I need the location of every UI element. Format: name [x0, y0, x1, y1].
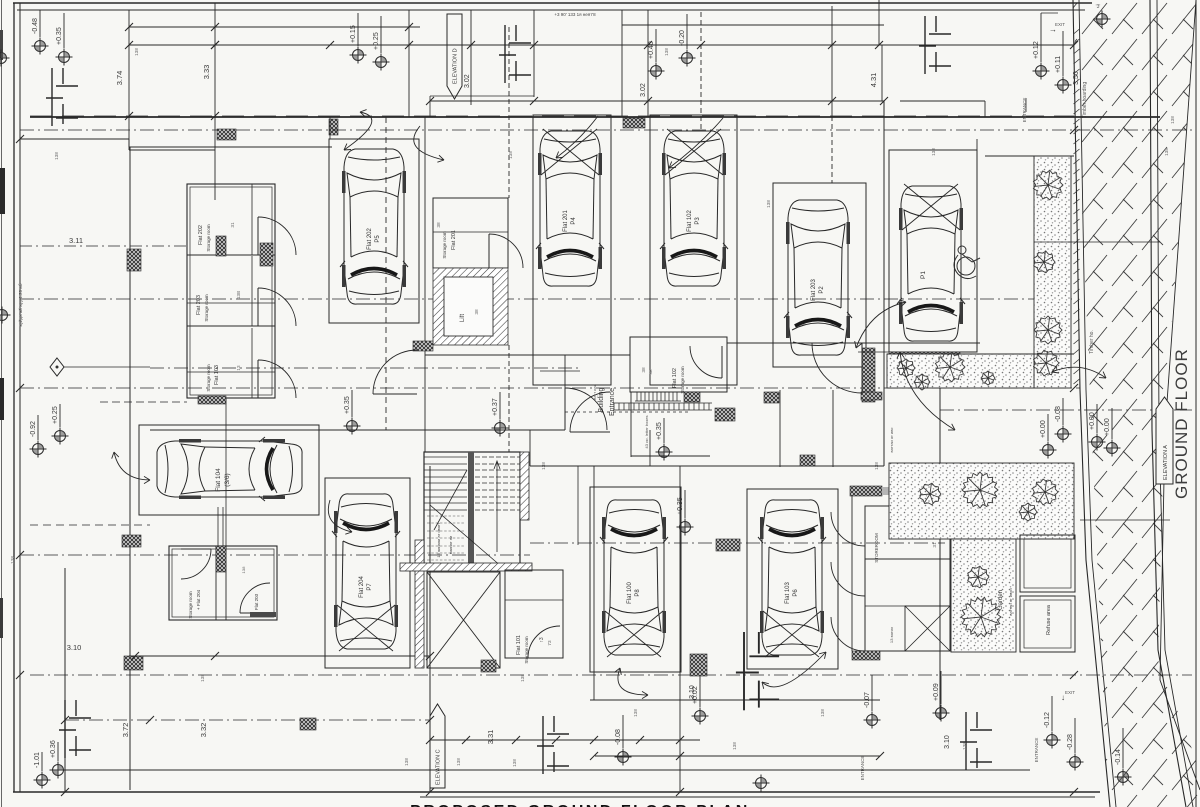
svg-text:P6: P6 [793, 589, 799, 597]
svg-text:+0.00: +0.00 [1089, 412, 1096, 430]
svg-text:3.02: 3.02 [464, 74, 471, 88]
svg-text:+0.15: +0.15 [350, 25, 357, 43]
svg-text:3.33: 3.33 [202, 65, 211, 80]
svg-text:-0.92: -0.92 [30, 421, 37, 437]
svg-text:1З: 1З [236, 365, 241, 371]
svg-text:Flat 103: Flat 103 [214, 365, 220, 385]
svg-text:ENTRANCE: ENTRANCE [1034, 738, 1039, 763]
svg-text:Flat 102: Flat 102 [687, 210, 693, 232]
svg-text:3.32: 3.32 [199, 723, 208, 738]
svg-text:1З8: 1З8 [633, 709, 638, 717]
svg-text:Flat 201: Flat 201 [451, 230, 457, 250]
svg-text:вуйда ай ауу 1.20 иб: вуйда ай ауу 1.20 иб [17, 283, 23, 326]
svg-text:1З8: 1З8 [54, 152, 59, 160]
svg-text:Flat 202: Flat 202 [198, 225, 204, 245]
svg-text:+0.11: +0.11 [1055, 56, 1062, 73]
svg-text:4З ио. letter boxes: 4З ио. letter boxes [644, 415, 649, 448]
svg-text:Storage room: Storage room [206, 224, 211, 252]
svg-text:Storage room: Storage room [206, 364, 211, 392]
svg-text:Flat 102: Flat 102 [672, 368, 678, 388]
svg-text:Flat 100: Flat 100 [627, 582, 633, 604]
svg-text:ELEVATION C: ELEVATION C [436, 749, 442, 785]
svg-text:(3/6): (3/6) [224, 473, 231, 486]
svg-text:1ЗВ: 1ЗВ [236, 291, 241, 299]
svg-text:Flat 101: Flat 101 [516, 635, 522, 655]
svg-text:EXIT: EXIT [1065, 690, 1075, 695]
svg-text:3.72: 3.72 [121, 723, 130, 738]
svg-text:1З8: 1З8 [766, 200, 771, 208]
svg-text:P5: P5 [375, 235, 381, 243]
svg-text:Flat 104: Flat 104 [215, 468, 222, 492]
svg-text:1З8: 1З8 [1170, 116, 1175, 124]
svg-text:GROUND FLOOR: GROUND FLOOR [1172, 348, 1191, 499]
svg-text:STOREROOM: STOREROOM [874, 533, 879, 563]
svg-text:1З8: 1З8 [508, 151, 513, 159]
svg-text:+0.12: +0.12 [1033, 41, 1040, 59]
svg-text:1З8: 1З8 [732, 742, 737, 750]
svg-text:Flat 103: Flat 103 [785, 582, 791, 604]
svg-text:EXIT: EXIT [1055, 22, 1065, 27]
svg-text:P1: P1 [920, 271, 927, 279]
svg-text:Timber ho.: Timber ho. [1089, 330, 1095, 354]
svg-text:18 яииаяи ат иватт: 18 яииаяи ат иватт [436, 522, 441, 557]
svg-text:3.31: 3.31 [486, 730, 495, 745]
svg-text:1З8: 1З8 [820, 709, 825, 717]
svg-text:1З8: 1З8 [10, 556, 15, 564]
svg-text:ватт иаи: ватт иаи [592, 384, 597, 400]
svg-text:↑3: ↑3 [539, 637, 545, 643]
svg-text:З1: З1 [230, 222, 235, 228]
svg-text:ЗВ: ЗВ [648, 369, 653, 374]
svg-text:+0.25: +0.25 [373, 32, 380, 50]
svg-text:З8: З8 [436, 222, 441, 228]
svg-text:+0.35: +0.35 [344, 396, 351, 414]
svg-text:Flat 201: Flat 201 [563, 210, 569, 232]
svg-text:ваттаи ат ивои: ваттаи ат ивои [1008, 588, 1013, 615]
svg-text:-0.48: -0.48 [32, 18, 39, 34]
svg-text:1З8: 1З8 [241, 566, 246, 574]
svg-text:+0.00: +0.00 [1104, 418, 1111, 436]
svg-text:Storage room: Storage room [442, 231, 447, 259]
svg-text:Flat 202: Flat 202 [367, 228, 373, 250]
svg-text:З1: З1 [932, 542, 937, 548]
svg-text:1З8: 1З8 [1164, 148, 1169, 156]
svg-text:3.50: 3.50 [1073, 71, 1080, 85]
svg-text:Flat 203: Flat 203 [254, 593, 259, 610]
svg-text:3.74: 3.74 [115, 71, 124, 86]
svg-text:1З8: 1З8 [664, 48, 669, 56]
svg-text:P3: P3 [695, 217, 701, 225]
svg-text:Storage room: Storage room [204, 294, 209, 322]
svg-text:-0.12: -0.12 [1044, 712, 1051, 728]
svg-text:-0.08: -0.08 [615, 729, 622, 745]
svg-text:З8: З8 [641, 367, 646, 373]
svg-text:1З8: 1З8 [404, 758, 409, 766]
svg-text:PROPOSED GROUND FLOOR PLAN: PROPOSED GROUND FLOOR PLAN [410, 803, 750, 807]
svg-text:ENTRANCE: ENTRANCE [860, 756, 865, 781]
svg-text:Lift: Lift [460, 314, 466, 322]
svg-text:1З8: 1З8 [520, 674, 525, 682]
svg-text:-0.14: -0.14 [1115, 749, 1122, 765]
svg-text:+ Flat 204: + Flat 204 [196, 589, 201, 610]
svg-text:1З8: 1З8 [200, 674, 205, 682]
svg-text:1З8: 1З8 [931, 148, 936, 156]
svg-text:1З8: 1З8 [134, 48, 139, 56]
svg-text:7З: 7З [547, 640, 552, 646]
svg-text:-0.20: -0.20 [679, 30, 686, 46]
svg-text:+0.25: +0.25 [52, 406, 59, 424]
svg-text:+0.36: +0.36 [50, 740, 57, 758]
svg-text:1З8: 1З8 [456, 758, 461, 766]
svg-text:3.10: 3.10 [67, 643, 82, 652]
svg-text:3.02: 3.02 [640, 83, 647, 97]
svg-text:Flat 203: Flat 203 [811, 279, 817, 301]
svg-text:З8: З8 [474, 309, 479, 315]
svg-text:Refuse area: Refuse area [1046, 604, 1052, 635]
svg-text:+0.00: +0.00 [1040, 420, 1047, 438]
svg-text:1З8: 1З8 [512, 759, 517, 767]
svg-text:+0.35: +0.35 [656, 422, 663, 440]
svg-text:Storage room: Storage room [188, 591, 193, 619]
svg-text:P7: P7 [367, 583, 373, 591]
svg-text:P2: P2 [819, 286, 825, 294]
svg-text:-1.01: -1.01 [34, 752, 41, 768]
svg-text:ELEVATION D: ELEVATION D [453, 48, 459, 84]
svg-text:+0.37: +0.37 [492, 398, 499, 416]
svg-text:Storage room: Storage room [680, 366, 685, 394]
svg-text:Storage room: Storage room [524, 636, 529, 664]
svg-text:ʹ3ʹ: ʹ3ʹ [1096, 3, 1101, 10]
svg-text:+0.35: +0.35 [56, 27, 63, 45]
svg-text:Timber hoarding: Timber hoarding [1082, 82, 1088, 118]
svg-text:-0.28: -0.28 [1067, 734, 1074, 750]
svg-text:ваттаи ат иво: ваттаи ат иво [889, 427, 894, 453]
svg-text:+0.09: +0.09 [933, 683, 940, 701]
svg-text:Flat 203: Flat 203 [196, 295, 202, 315]
svg-text:4.31: 4.31 [869, 73, 878, 88]
svg-text:P4: P4 [571, 217, 577, 225]
svg-text:3.11: 3.11 [69, 236, 83, 245]
svg-text:ваииат яи: ваииат яи [448, 536, 453, 554]
svg-text:ELEVATION A: ELEVATION A [1163, 445, 1169, 480]
svg-text:P8: P8 [635, 589, 641, 597]
svg-text:+3 90ʹ 133 1я неятʹ8: +3 90ʹ 133 1я неятʹ8 [554, 11, 596, 17]
svg-text:3.10: 3.10 [944, 735, 951, 749]
svg-text:3.10: 3.10 [689, 685, 696, 699]
svg-text:1З8: 1З8 [962, 742, 967, 750]
svg-text:-0.08: -0.08 [1055, 406, 1062, 422]
svg-text:Garden: Garden [998, 590, 1004, 610]
svg-text:1З ватио: 1З ватио [889, 626, 894, 643]
svg-text:Flat 204: Flat 204 [359, 576, 365, 598]
